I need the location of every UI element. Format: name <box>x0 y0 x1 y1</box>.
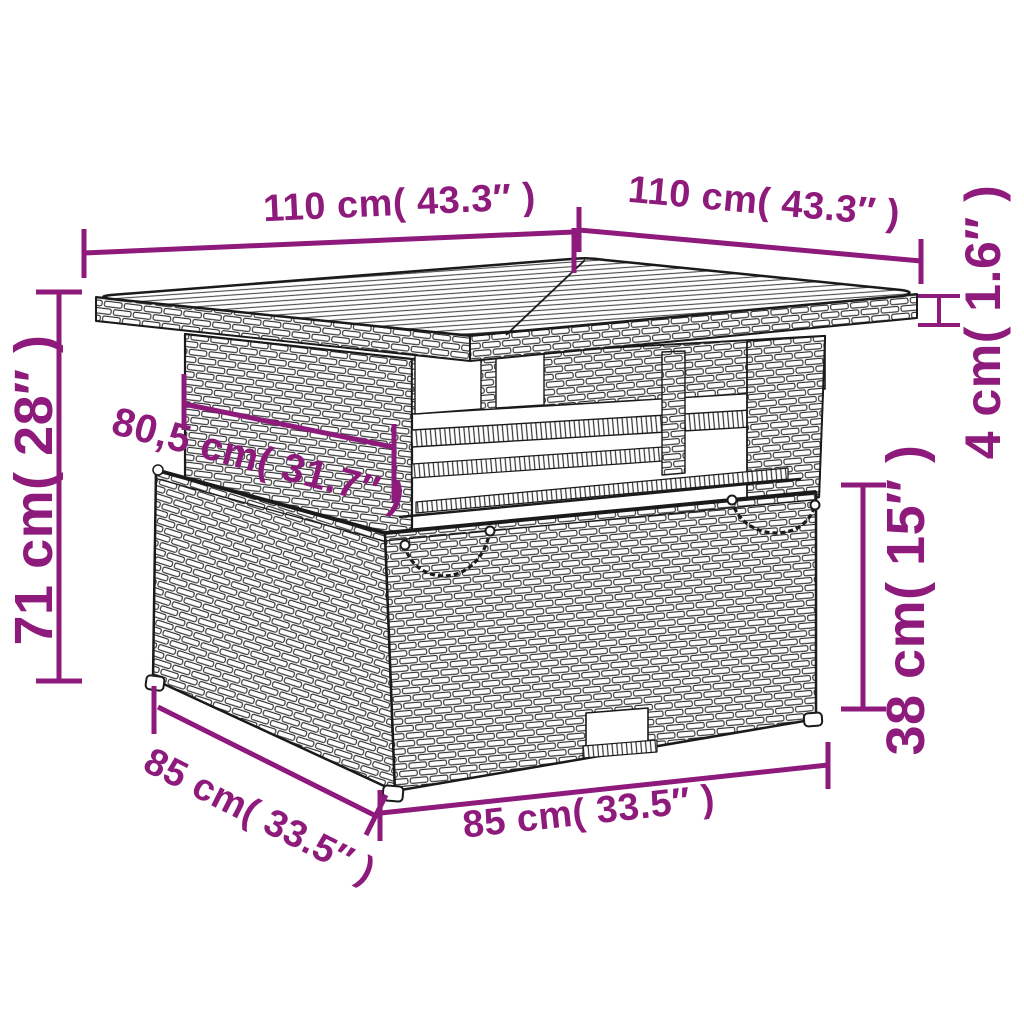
dim-base-width-label: 85 cm( 33.5″ ) <box>461 778 717 847</box>
dim-height-label: 71 cm( 28″ ) <box>4 334 64 645</box>
base-corner-knob <box>153 465 163 475</box>
chain-ring-right-a <box>728 496 737 505</box>
dim-top-width-label: 110 cm( 43.3″ ) <box>262 176 536 230</box>
dim-top-width-line <box>84 232 574 253</box>
dim-top-depth-line <box>579 230 921 261</box>
dim-base-height-label: 38 cm( 15″ ) <box>876 444 936 755</box>
dimension-diagram: 110 cm( 43.3″ ) 110 cm( 43.3″ ) 4 cm( 1.… <box>0 0 1024 1024</box>
foot-east <box>804 712 823 726</box>
pedestal-back-post <box>662 351 685 475</box>
chain-ring-left-a <box>401 541 410 550</box>
chain-ring-right-b <box>811 501 820 510</box>
dim-top-depth-label: 110 cm( 43.3″ ) <box>626 169 902 236</box>
chain-ring-left-b <box>486 527 495 536</box>
table-drawing <box>96 258 917 802</box>
dim-thickness-label: 4 cm( 1.6″ ) <box>955 185 1011 460</box>
